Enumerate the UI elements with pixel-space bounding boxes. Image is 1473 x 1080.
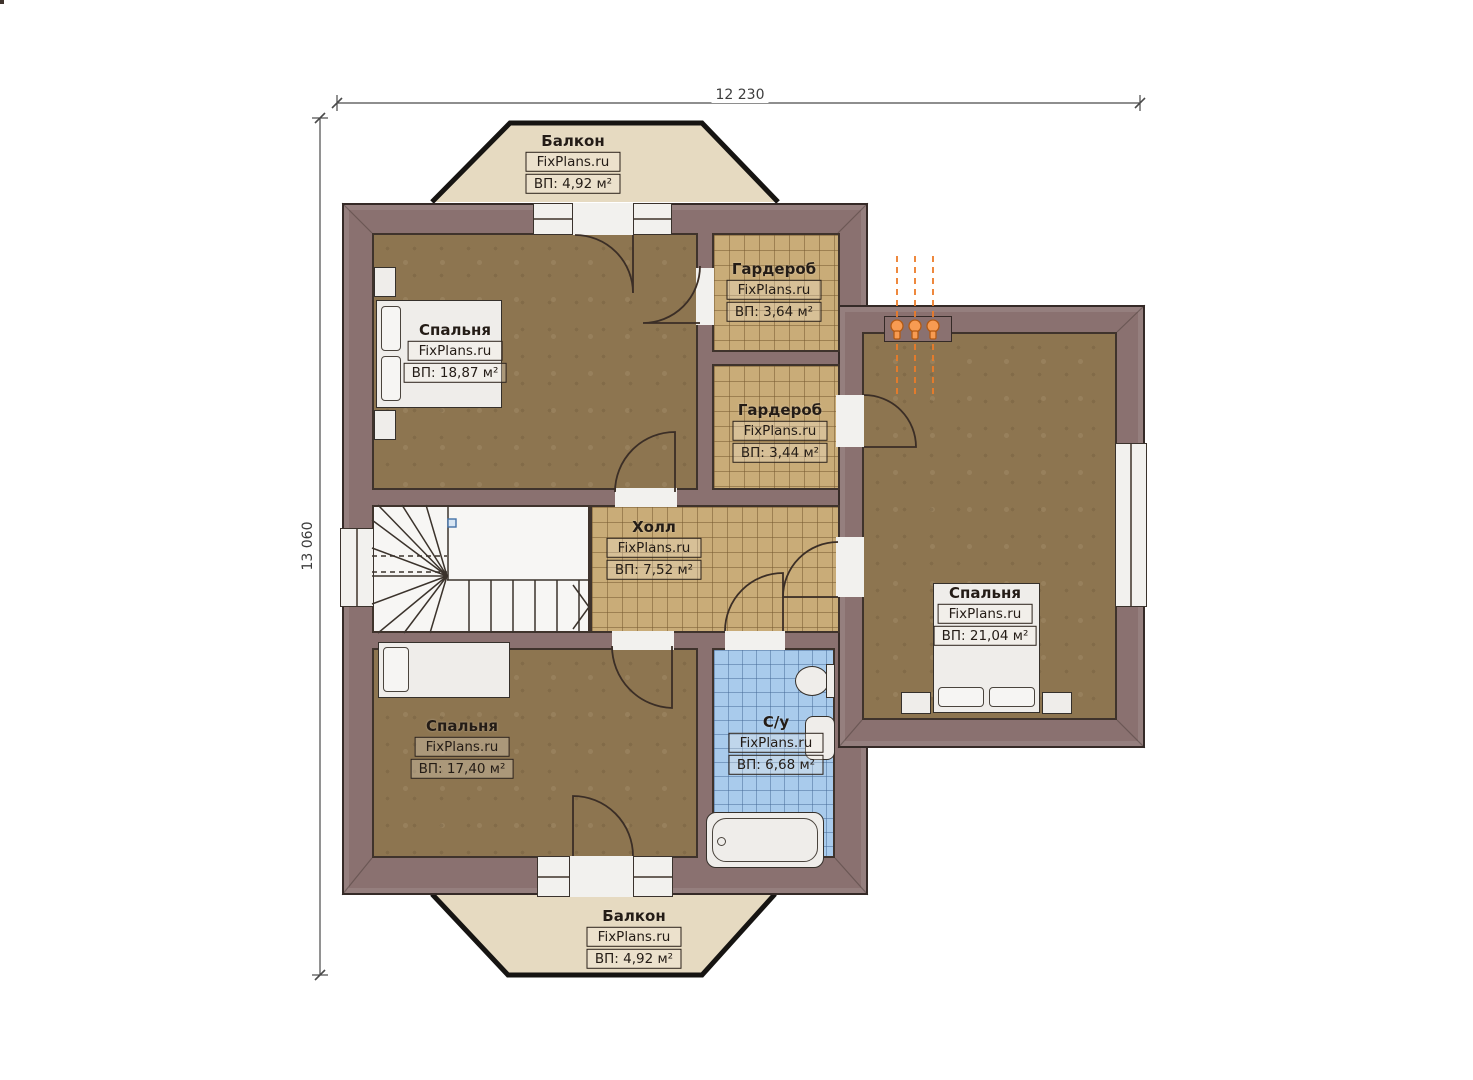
room-name: Гардероб <box>738 401 822 419</box>
watermark: FixPlans.ru <box>727 280 822 300</box>
room-name: С/у <box>763 713 789 731</box>
room-area: ВП: 7,52 м² <box>607 560 702 580</box>
watermark: FixPlans.ru <box>526 152 621 172</box>
chimney-flue-symbols <box>891 256 939 395</box>
room-area: ВП: 4,92 м² <box>526 174 621 194</box>
room-area: ВП: 21,04 м² <box>934 626 1037 646</box>
watermark: FixPlans.ru <box>607 538 702 558</box>
room-area: ВП: 17,40 м² <box>411 759 514 779</box>
room-label-hall: Холл FixPlans.ru ВП: 7,52 м² <box>607 518 702 580</box>
flame-icon <box>891 320 939 339</box>
room-name: Балкон <box>541 132 604 150</box>
room-name: Спальня <box>426 717 498 735</box>
dimension-width-label: 12 230 <box>712 87 769 103</box>
dimension-height-label: 13 060 <box>300 518 316 575</box>
watermark: FixPlans.ru <box>729 733 824 753</box>
room-area: ВП: 6,68 м² <box>729 755 824 775</box>
stairs-linework <box>372 505 590 633</box>
room-area: ВП: 4,92 м² <box>587 949 682 969</box>
room-label-wardrobe-middle: Гардероб FixPlans.ru ВП: 3,44 м² <box>733 401 828 463</box>
room-name: Балкон <box>602 907 665 925</box>
room-name: Спальня <box>949 584 1021 602</box>
room-area: ВП: 3,64 м² <box>727 302 822 322</box>
room-label-bathroom: С/у FixPlans.ru ВП: 6,68 м² <box>729 713 824 775</box>
room-label-bedroom-top-left: Спальня FixPlans.ru ВП: 18,87 м² <box>404 321 507 383</box>
watermark: FixPlans.ru <box>937 604 1032 624</box>
room-name: Холл <box>632 518 676 536</box>
plan-linework <box>0 0 1473 1080</box>
watermark: FixPlans.ru <box>407 341 502 361</box>
watermark: FixPlans.ru <box>414 737 509 757</box>
watermark: FixPlans.ru <box>587 927 682 947</box>
room-name: Гардероб <box>732 260 816 278</box>
room-area: ВП: 18,87 м² <box>404 363 507 383</box>
room-name: Спальня <box>419 321 491 339</box>
room-area: ВП: 3,44 м² <box>733 443 828 463</box>
room-label-wardrobe-top: Гардероб FixPlans.ru ВП: 3,64 м² <box>727 260 822 322</box>
stairs-marker <box>448 519 456 527</box>
room-label-bedroom-right: Спальня FixPlans.ru ВП: 21,04 м² <box>934 584 1037 646</box>
room-label-balcony-bottom: Балкон FixPlans.ru ВП: 4,92 м² <box>587 907 682 969</box>
room-label-balcony-top: Балкон FixPlans.ru ВП: 4,92 м² <box>526 132 621 194</box>
floor-plan: 12 230 13 060 Балкон FixPlans.ru ВП: 4,9… <box>0 0 1473 1080</box>
room-label-bedroom-bottom-left: Спальня FixPlans.ru ВП: 17,40 м² <box>411 717 514 779</box>
watermark: FixPlans.ru <box>733 421 828 441</box>
